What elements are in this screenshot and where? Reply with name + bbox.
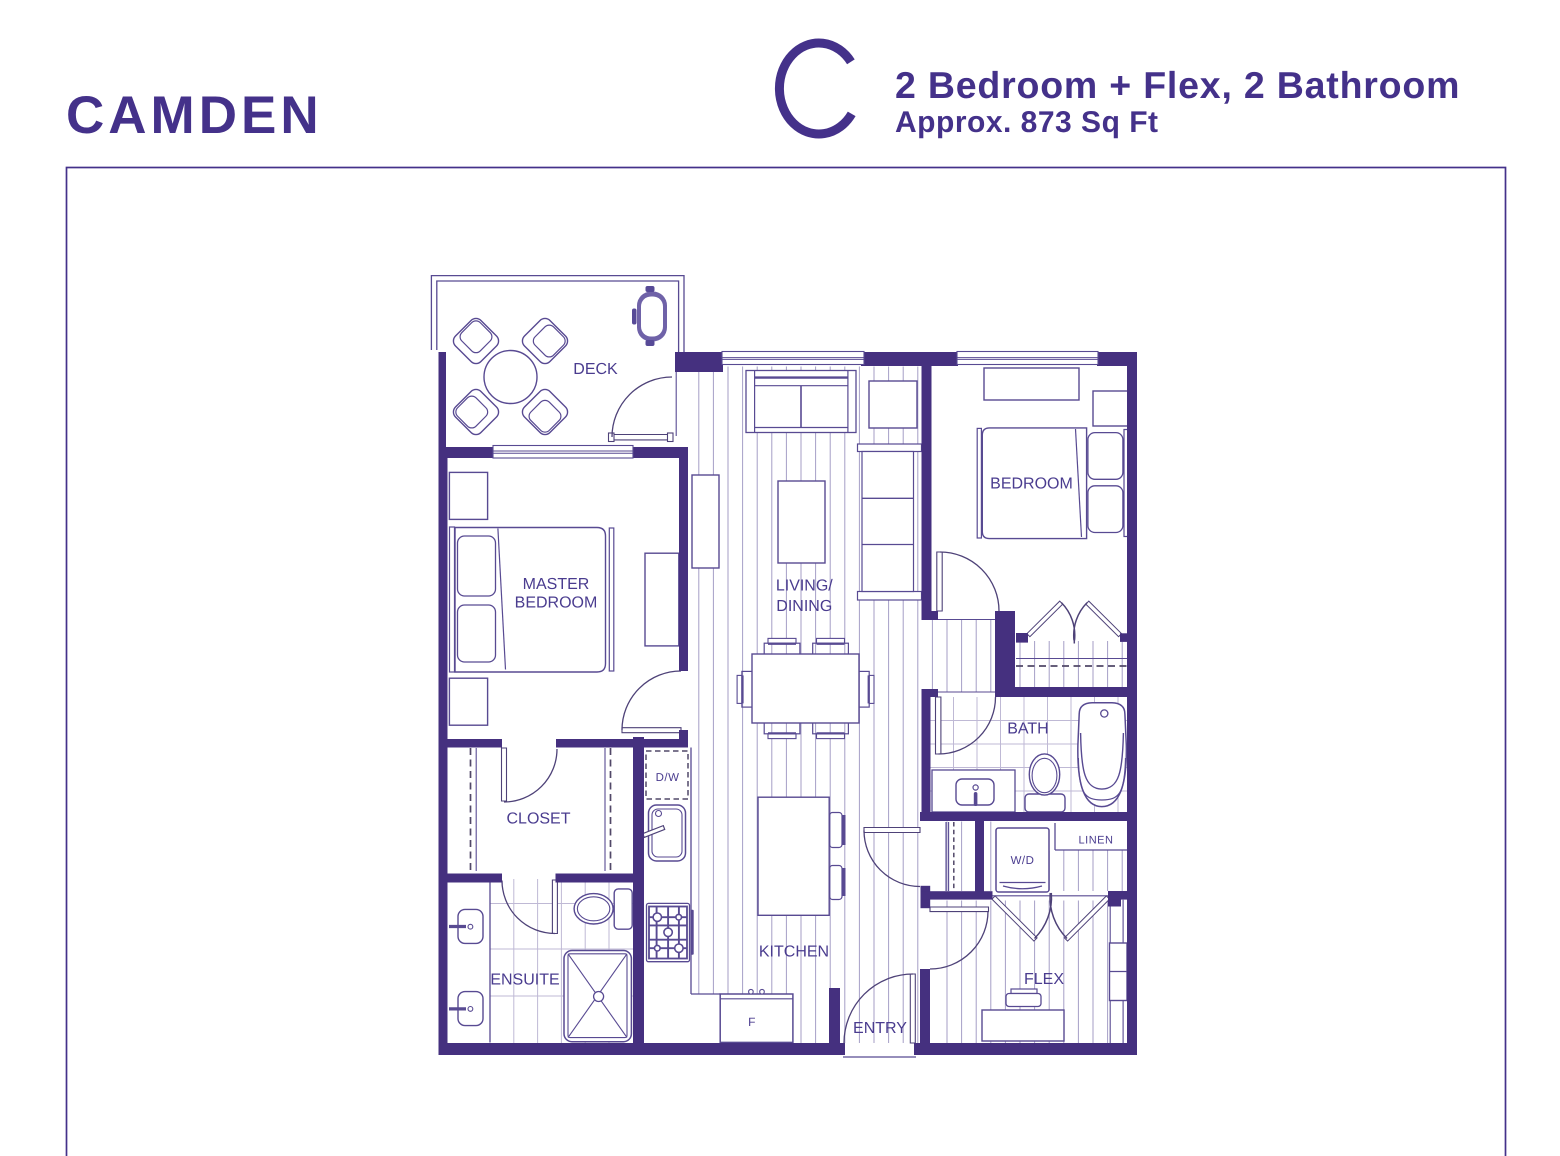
svg-text:DINING: DINING [776, 598, 832, 615]
svg-text:W/D: W/D [1011, 855, 1035, 867]
svg-text:ENSUITE: ENSUITE [490, 972, 559, 989]
svg-text:ENTRY: ENTRY [853, 1020, 907, 1037]
svg-text:LIVING/: LIVING/ [776, 578, 833, 595]
svg-text:F: F [748, 1015, 756, 1029]
svg-text:BEDROOM: BEDROOM [990, 476, 1073, 493]
svg-text:Approx. 873 Sq Ft: Approx. 873 Sq Ft [895, 106, 1159, 139]
svg-text:LINEN: LINEN [1079, 835, 1114, 847]
svg-text:BATH: BATH [1007, 721, 1048, 738]
svg-text:D/W: D/W [656, 772, 680, 784]
svg-text:MASTER: MASTER [523, 576, 590, 593]
svg-text:2 Bedroom + Flex, 2 Bathroom: 2 Bedroom + Flex, 2 Bathroom [895, 64, 1460, 106]
svg-text:KITCHEN: KITCHEN [759, 944, 829, 961]
svg-text:BEDROOM: BEDROOM [515, 595, 598, 612]
svg-text:CAMDEN: CAMDEN [66, 86, 323, 145]
svg-text:DECK: DECK [573, 361, 618, 378]
svg-text:FLEX: FLEX [1024, 971, 1064, 988]
svg-text:CLOSET: CLOSET [506, 811, 570, 828]
